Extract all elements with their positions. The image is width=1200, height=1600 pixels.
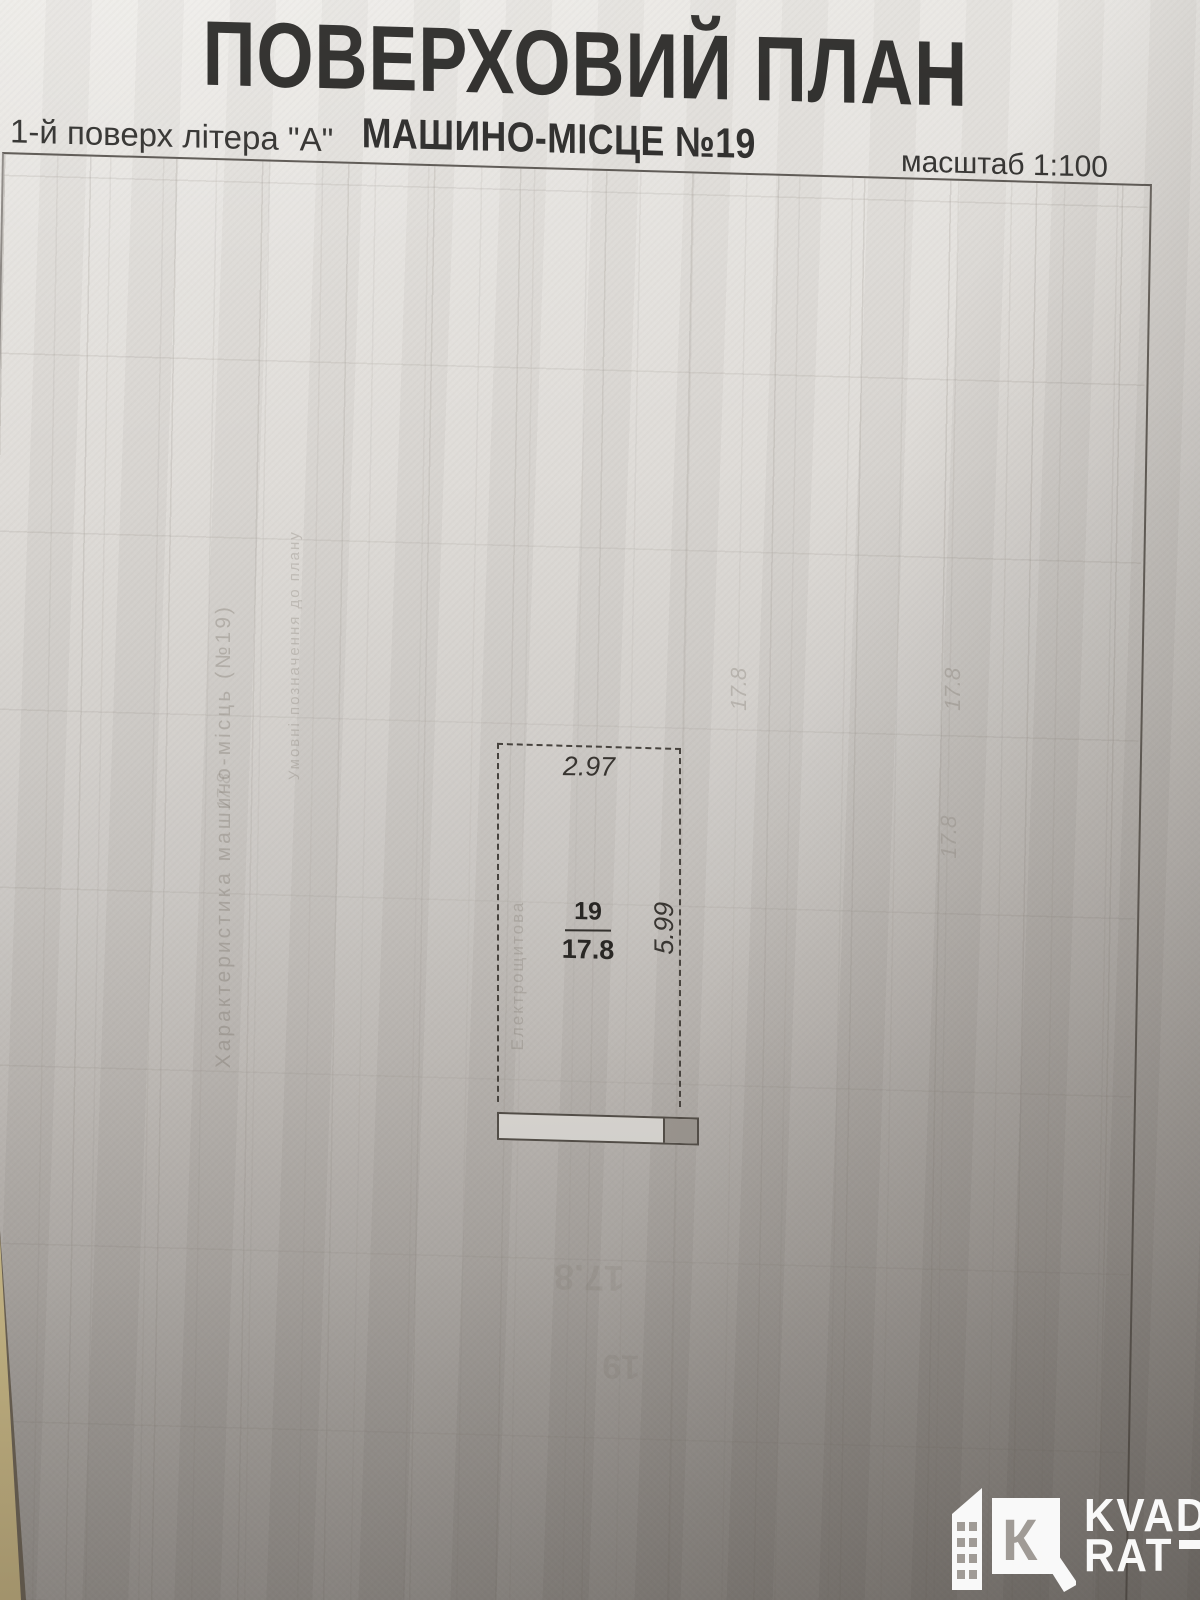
ghost-area-number: 17.8: [726, 667, 752, 711]
document-content: ПОВЕРХОВИЙ ПЛАН МАШИНО-МІСЦЕ №19 1-й пов…: [0, 0, 1200, 1600]
parking-space-19-outline: 2.97 5.99 19 17.8: [497, 743, 681, 1107]
page-subtitle-text: МАШИНО-МІСЦЕ №19: [362, 109, 756, 168]
dimension-width: 2.97: [499, 751, 680, 784]
kvadrat-watermark-logo: К KVAD RAT житлова компанія: [952, 1478, 1200, 1600]
space-area: 17.8: [557, 934, 619, 967]
ghost-area-number: 17.8: [936, 815, 962, 859]
wall-column-block: [663, 1119, 697, 1144]
ghost-table-header-text: Умовні позначення до плану: [286, 530, 303, 780]
wall-segment: [497, 1112, 699, 1146]
ghost-area-number: 17.8: [554, 1255, 624, 1299]
parking-space-label: 19 17.8: [557, 897, 619, 967]
fraction-divider: [565, 929, 611, 931]
kvadrat-building-icon: К: [952, 1478, 1076, 1600]
logo-t-crossbar: [1179, 1540, 1200, 1549]
space-number: 19: [557, 897, 619, 928]
floorplan-document-photo: ПОВЕРХОВИЙ ПЛАН МАШИНО-МІСЦЕ №19 1-й пов…: [0, 0, 1200, 1600]
ghost-space-number: 19: [602, 1346, 640, 1386]
ghost-table-header-text: Характеристика машино-місць (№19): [212, 604, 236, 1069]
dimension-depth: 5.99: [649, 902, 680, 955]
logo-name-line2: RAT: [1084, 1538, 1173, 1574]
ghost-area-number: 17.8: [214, 773, 236, 811]
kvadrat-logo-text: KVAD RAT житлова компанія: [1084, 1478, 1200, 1600]
ghost-area-number: 17.8: [940, 667, 966, 711]
floor-label: 1-й поверх літера "А": [10, 112, 333, 159]
